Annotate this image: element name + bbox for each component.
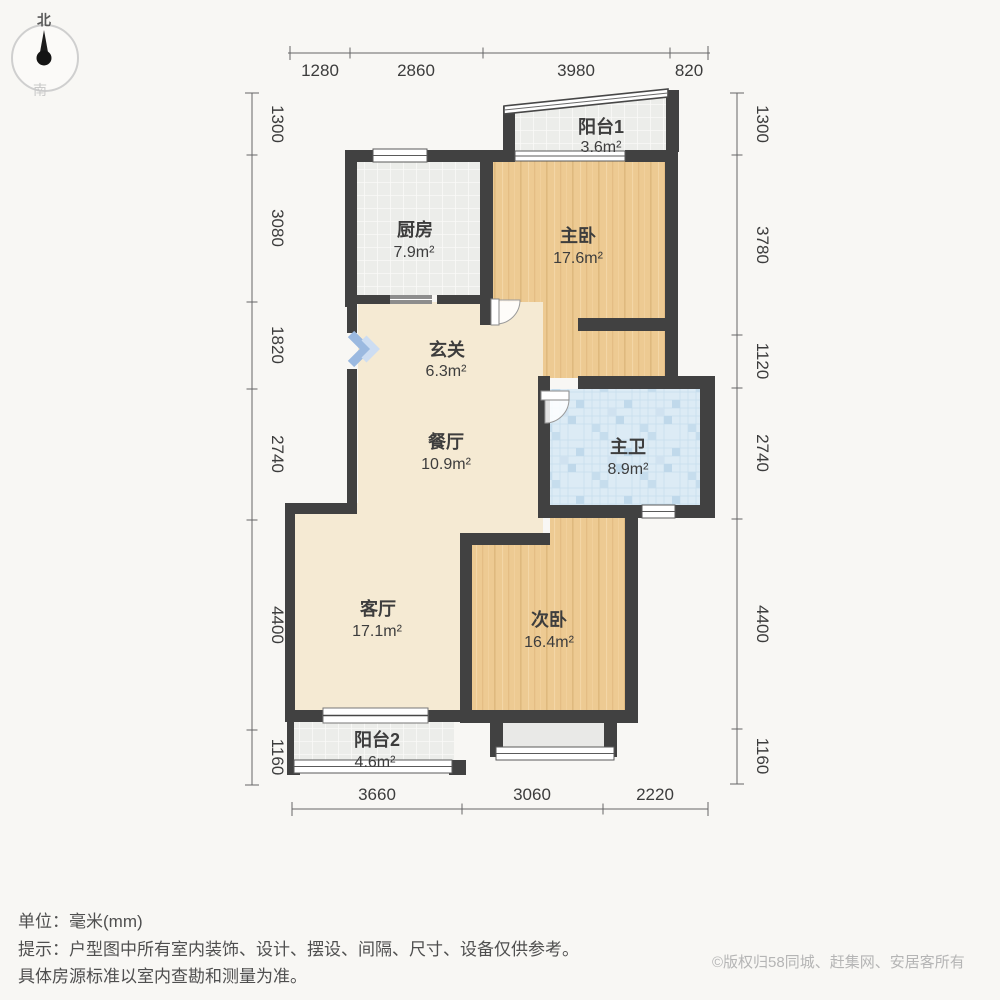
dim-label-left: 1160 [268,739,287,776]
copyright-note: ©版权归58同城、赶集网、安居客所有 [712,951,965,972]
room-area: 17.6m² [553,250,603,267]
dim-label-right: 4400 [753,605,772,643]
wall-segment [578,318,668,331]
compass-hub [37,51,52,66]
room-label: 阳台2 [354,729,400,750]
wall-segment [625,518,638,723]
dim-label-right: 2740 [753,434,772,472]
floorplan-page: 北 南 阳台1 3.6m² 厨房 7.9m² 主卧 17.6m² 玄关 6.3m… [0,0,1000,1000]
room-area: 16.4m² [524,634,574,651]
dim-label-left: 4400 [268,606,287,644]
dim-label-right: 3780 [753,226,772,264]
door-leaf [541,391,569,400]
room-area: 17.1m² [352,623,402,640]
wall-segment [437,295,483,304]
disclaimer-line1: 提示：户型图中所有室内装饰、设计、摆设、间隔、尺寸、设备仅供参考。 [18,936,579,963]
door-leaf [491,299,499,325]
wall-segment [294,710,323,722]
wall-segment [538,505,642,518]
wall-segment [483,150,515,162]
room-area: 3.6m² [581,139,623,156]
room-label: 次卧 [531,609,567,630]
wall-segment [666,90,679,152]
dim-label-right: 1300 [753,105,772,143]
dim-label-top: 2860 [397,61,435,80]
kitchen-window [373,149,427,162]
bay-window [496,747,614,760]
dim-label-left: 3080 [268,209,287,247]
disclaimer-line2: 具体房源标准以室内查勘和测量为准。 [18,963,307,990]
wall-segment [345,150,357,307]
unit-note: 单位：毫米(mm) [18,908,143,935]
dim-label-left: 1300 [268,105,287,143]
wall-segment [460,533,550,545]
dim-label-top: 3980 [557,61,595,80]
floorplan-svg: 北 南 阳台1 3.6m² 厨房 7.9m² 主卧 17.6m² 玄关 6.3m… [0,0,1000,1000]
room-entry: 玄关 6.3m² [426,339,468,380]
room-label: 餐厅 [427,431,464,452]
wall-segment [665,150,678,376]
room-label: 客厅 [360,598,396,619]
room-area: 10.9m² [421,456,471,473]
wall-segment [460,535,472,723]
compass-icon: 北 南 [12,12,78,98]
room-area: 6.3m² [426,363,468,380]
compass-south-label: 南 [33,82,47,98]
compass-north-label: 北 [37,12,51,28]
wall-segment [285,503,357,514]
room-balcony1: 阳台1 3.6m² [578,116,624,156]
room-area: 7.9m² [394,244,436,261]
master-bath-window [642,505,675,518]
room-area: 8.9m² [608,461,650,478]
dim-label-right: 1160 [753,738,772,775]
dim-label-bottom: 2220 [636,785,674,804]
dim-label-bottom: 3060 [513,785,551,804]
room-label: 阳台1 [578,116,624,137]
dim-label-right: 1120 [753,343,772,380]
wall-segment [625,150,667,162]
room-area: 4.6m² [355,754,397,771]
wall-segment [347,369,357,509]
dim-label-top: 820 [675,61,703,80]
wall-segment [700,376,715,518]
dim-label-top: 1280 [301,61,339,80]
room-label: 厨房 [397,219,433,240]
wall-segment [578,376,715,389]
room-entry-dining-floor [358,302,543,533]
bay-window-floor [503,723,604,750]
dim-label-bottom: 3660 [358,785,396,804]
room-label: 主卫 [610,436,646,457]
wall-segment [347,307,357,333]
room-label: 主卧 [560,225,596,246]
living-balcony2-slider [323,708,428,723]
dim-label-left: 1820 [268,326,287,364]
dim-label-left: 2740 [268,435,287,473]
room-label: 玄关 [429,339,465,360]
